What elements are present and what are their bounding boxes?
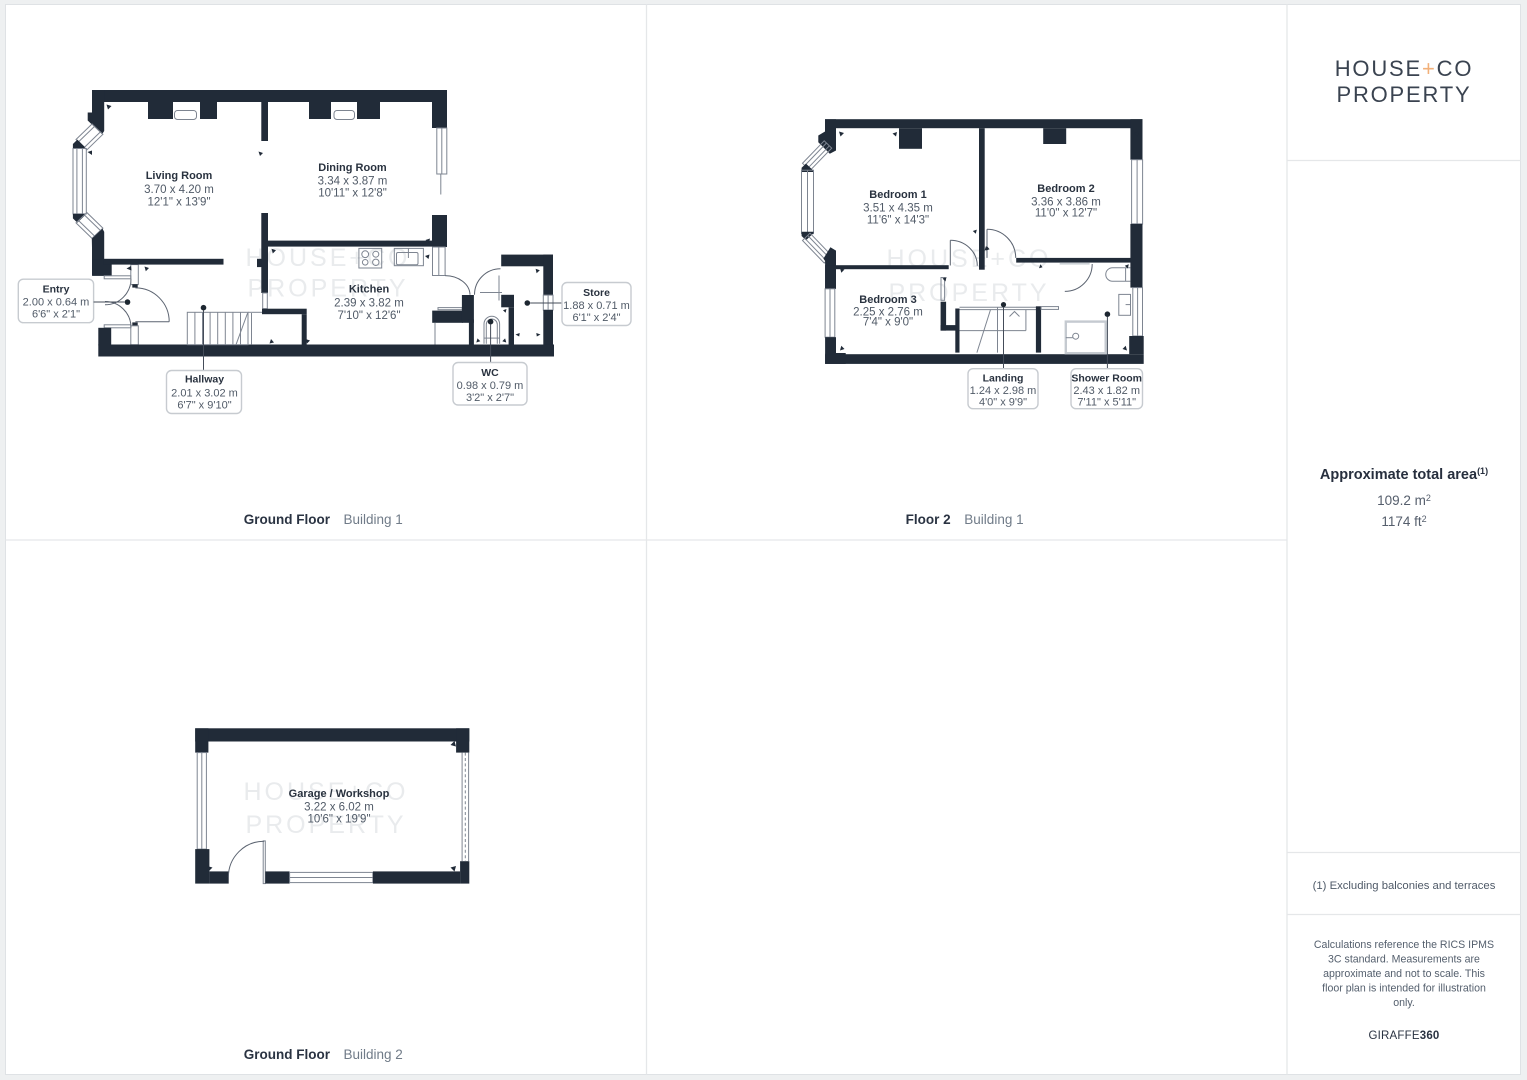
svg-text:Building 1: Building 1 <box>964 512 1023 527</box>
svg-text:approximate and not to scale.: approximate and not to scale. This <box>1323 968 1485 980</box>
svg-text:4'0" x 9'9": 4'0" x 9'9" <box>979 397 1027 409</box>
svg-text:Ground Floor: Ground Floor <box>244 512 331 527</box>
svg-text:6'6" x 2'1": 6'6" x 2'1" <box>32 309 80 321</box>
svg-text:Bedroom 3: Bedroom 3 <box>859 294 916 306</box>
svg-text:Hallway: Hallway <box>185 374 224 386</box>
svg-text:Building 1: Building 1 <box>344 512 403 527</box>
svg-text:7'10" x 12'6": 7'10" x 12'6" <box>337 310 400 322</box>
svg-text:Shower Room: Shower Room <box>1071 373 1142 385</box>
svg-text:HOUSE+CO: HOUSE+CO <box>245 244 410 272</box>
svg-text:11'6" x 14'3": 11'6" x 14'3" <box>867 215 929 227</box>
svg-text:3'2" x 2'7": 3'2" x 2'7" <box>466 392 514 404</box>
svg-text:2.01 x 3.02 m: 2.01 x 3.02 m <box>171 388 238 400</box>
svg-text:2.43 x 1.82 m: 2.43 x 1.82 m <box>1073 385 1140 397</box>
svg-text:Bedroom 2: Bedroom 2 <box>1037 183 1094 195</box>
svg-text:7'4" x 9'0": 7'4" x 9'0" <box>863 317 913 329</box>
svg-text:0.98 x 0.79 m: 0.98 x 0.79 m <box>457 380 524 392</box>
svg-text:Bedroom 1: Bedroom 1 <box>869 189 926 201</box>
svg-text:Landing: Landing <box>983 373 1024 385</box>
svg-text:Living Room: Living Room <box>146 170 213 182</box>
svg-text:Approximate total area(1): Approximate total area(1) <box>1320 466 1488 483</box>
svg-text:3.70 x 4.20 m: 3.70 x 4.20 m <box>144 184 214 196</box>
svg-text:(1) Excluding balconies and te: (1) Excluding balconies and terraces <box>1313 880 1496 892</box>
svg-text:1.24 x 2.98 m: 1.24 x 2.98 m <box>970 385 1037 397</box>
svg-text:PROPERTY: PROPERTY <box>1336 82 1471 107</box>
svg-text:2.00 x 0.64 m: 2.00 x 0.64 m <box>23 297 90 309</box>
svg-text:GIRAFFE360: GIRAFFE360 <box>1368 1030 1439 1042</box>
svg-text:11'0" x 12'7": 11'0" x 12'7" <box>1035 208 1097 220</box>
svg-text:6'7" x 9'10": 6'7" x 9'10" <box>177 399 231 411</box>
svg-text:Ground Floor: Ground Floor <box>244 1047 331 1062</box>
svg-text:10'11" x 12'8": 10'11" x 12'8" <box>318 188 387 200</box>
svg-text:only.: only. <box>1393 997 1415 1009</box>
svg-text:3.22 x 6.02 m: 3.22 x 6.02 m <box>304 802 374 814</box>
svg-text:1.88 x 0.71 m: 1.88 x 0.71 m <box>563 300 630 312</box>
svg-text:2.39 x 3.82 m: 2.39 x 3.82 m <box>334 298 404 310</box>
svg-text:Dining Room: Dining Room <box>318 162 387 174</box>
svg-text:109.2 m2: 109.2 m2 <box>1377 493 1431 508</box>
svg-text:Calculations reference the RIC: Calculations reference the RICS IPMS <box>1314 939 1494 951</box>
svg-text:7'11" x 5'11": 7'11" x 5'11" <box>1077 397 1136 409</box>
svg-text:3.51 x 4.35 m: 3.51 x 4.35 m <box>863 203 933 215</box>
svg-text:10'6" x 19'9": 10'6" x 19'9" <box>307 814 370 826</box>
svg-text:3C standard. Measurements are: 3C standard. Measurements are <box>1328 954 1480 966</box>
svg-text:WC: WC <box>481 367 499 379</box>
svg-text:Store: Store <box>583 287 610 299</box>
svg-text:HOUSE+CO: HOUSE+CO <box>1335 56 1474 81</box>
svg-text:6'1" x 2'4": 6'1" x 2'4" <box>572 312 620 324</box>
svg-text:Kitchen: Kitchen <box>349 284 390 296</box>
svg-text:Entry: Entry <box>43 284 70 296</box>
svg-text:Garage / Workshop: Garage / Workshop <box>289 788 390 800</box>
svg-text:floor plan is intended for ill: floor plan is intended for illustration <box>1322 983 1486 995</box>
svg-text:1174 ft2: 1174 ft2 <box>1381 514 1426 529</box>
svg-text:Floor 2: Floor 2 <box>906 512 951 527</box>
svg-text:Building 2: Building 2 <box>344 1047 403 1062</box>
svg-text:12'1" x 13'9": 12'1" x 13'9" <box>147 197 210 209</box>
svg-text:3.34 x 3.87 m: 3.34 x 3.87 m <box>318 176 388 188</box>
